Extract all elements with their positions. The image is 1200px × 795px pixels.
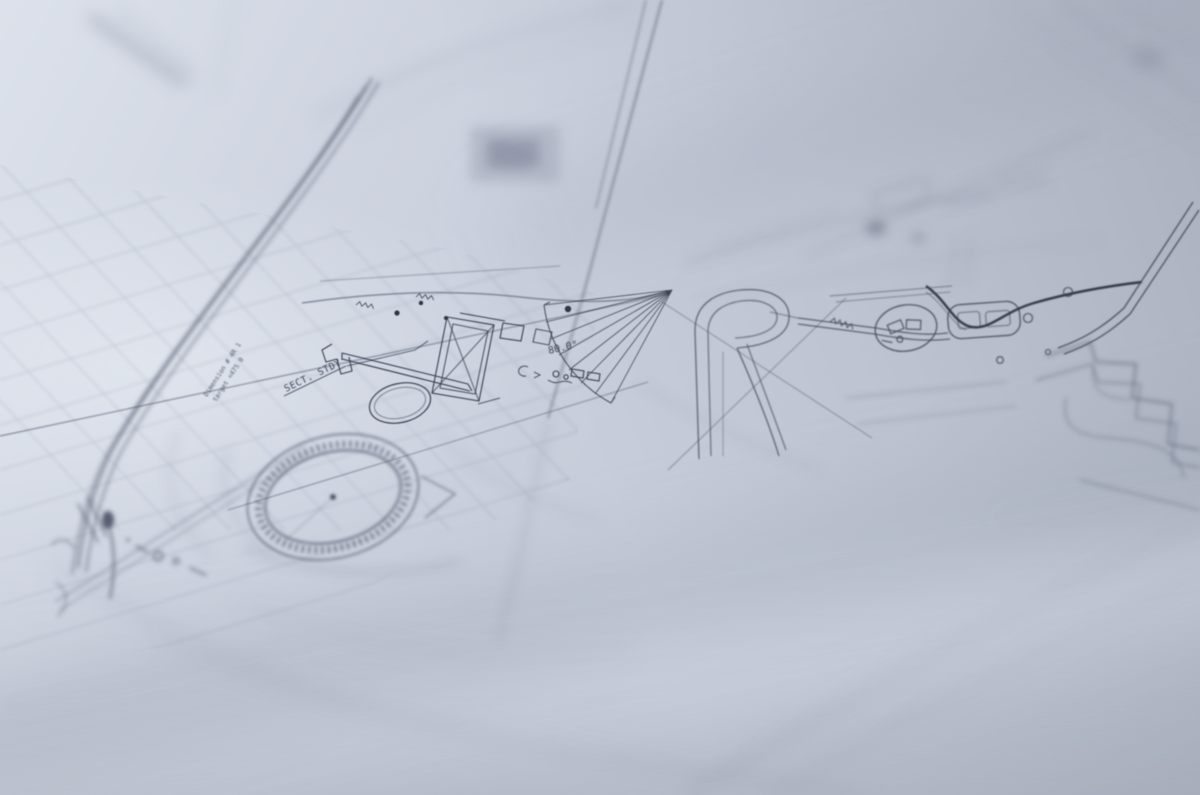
right-machinery [770,202,1199,363]
outline-letter-shape [695,290,789,459]
section-study-label: SECT. STDY [282,358,343,395]
photo-of-blueprint: SECT. STDY 80.0° Dimension # 4R 1 target… [0,0,1200,795]
bottom-left-scribbles [52,498,206,616]
dimension-note: Dimension # 4R 1 target <475 0 [202,341,245,403]
drawing-labels: SECT. STDY 80.0° [282,339,579,396]
ellipse-part [365,377,434,429]
angle-label: 80.0° [547,339,579,356]
